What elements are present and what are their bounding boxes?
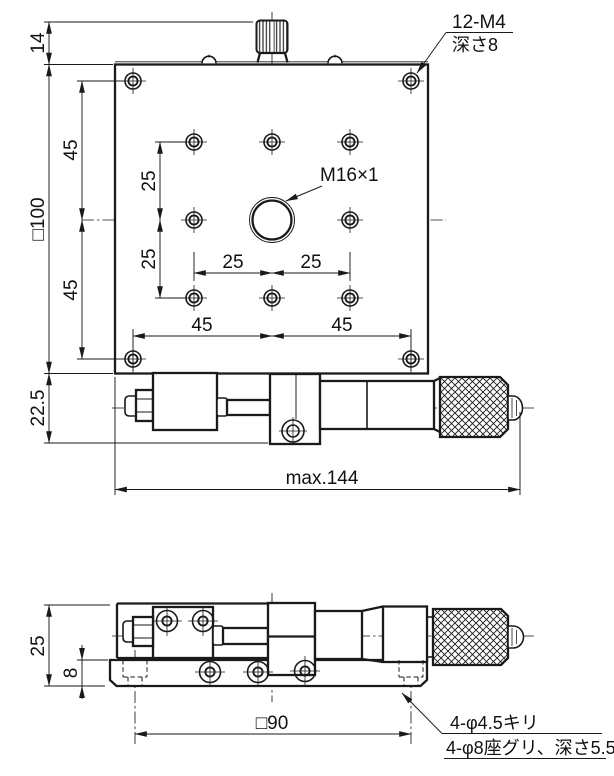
dome-screw-left bbox=[202, 55, 216, 64]
dim-micrometer-offset: 22.5 bbox=[28, 390, 49, 427]
note-tapped-holes-line2: 深さ8 bbox=[452, 35, 498, 55]
dim-corner-v-lower: 45 bbox=[61, 279, 82, 300]
knob-flange bbox=[258, 53, 288, 63]
dim-grid-h-right: 25 bbox=[300, 252, 321, 273]
note-mount-holes-line1: 4-φ4.5キリ bbox=[450, 713, 539, 733]
hex-locknut bbox=[136, 390, 153, 421]
note-mount-holes-line2: 4-φ8座グリ、深さ5.5 bbox=[446, 738, 614, 758]
note-center-thread-label: M16×1 bbox=[320, 165, 379, 186]
dim-corner-h-left: 45 bbox=[191, 315, 212, 336]
thimble-side[interactable] bbox=[433, 609, 508, 665]
sleeve-side bbox=[315, 611, 362, 659]
note-mount-holes: 4-φ4.5キリ 4-φ8座グリ、深さ5.5 bbox=[402, 693, 614, 759]
dim-base-height: 8 bbox=[61, 668, 82, 679]
micrometer-thimble[interactable] bbox=[440, 377, 508, 437]
spindle-shaft bbox=[227, 400, 270, 415]
micrometer-clamp-block bbox=[270, 374, 320, 445]
spindle-shaft-side bbox=[223, 628, 268, 644]
spindle-tip-side bbox=[213, 626, 223, 645]
clamp-bracket-side bbox=[268, 603, 320, 686]
dim-corner-v-upper: 45 bbox=[61, 139, 82, 160]
dim-grid-v-lower: 25 bbox=[139, 248, 160, 269]
opposing-screw-cap bbox=[125, 396, 136, 416]
dim-grid-h-left: 25 bbox=[222, 252, 243, 273]
note-tapped-holes: 12-M4 深さ8 bbox=[417, 12, 513, 73]
stop-block bbox=[153, 373, 217, 430]
opposing-screw-side bbox=[123, 617, 153, 646]
preload-bracket bbox=[152, 606, 218, 658]
dim-mount-pitch: □90 bbox=[256, 713, 289, 734]
note-tapped-holes-line1: 12-M4 bbox=[452, 12, 506, 33]
spindle-tip bbox=[217, 398, 227, 416]
dim-plate-size: □100 bbox=[28, 197, 49, 240]
dim-grid-v-upper: 25 bbox=[139, 170, 160, 191]
stage-drawing-svg: 14 □100 45 45 25 25 25 25 bbox=[0, 0, 614, 776]
micrometer-assembly-side bbox=[315, 607, 524, 666]
technical-drawing-page: 14 □100 45 45 25 25 25 25 bbox=[0, 0, 614, 776]
micrometer-sleeve bbox=[320, 381, 434, 429]
dome-screw-right bbox=[328, 55, 342, 64]
barrel-side bbox=[383, 607, 427, 663]
dim-knob-height: 14 bbox=[28, 32, 49, 54]
dim-overall-max: max.144 bbox=[286, 468, 359, 489]
ratchet-stop-side[interactable] bbox=[508, 626, 524, 648]
dim-total-height: 25 bbox=[28, 635, 49, 656]
dim-corner-h-right: 45 bbox=[331, 315, 352, 336]
micrometer-assembly-plan bbox=[125, 373, 523, 445]
side-view: 25 8 □90 4-φ4.5キリ 4-φ8座グリ、深さ5.5 bbox=[28, 593, 614, 759]
plan-view: 14 □100 45 45 25 25 25 25 bbox=[28, 12, 534, 495]
top-plate bbox=[115, 65, 428, 374]
